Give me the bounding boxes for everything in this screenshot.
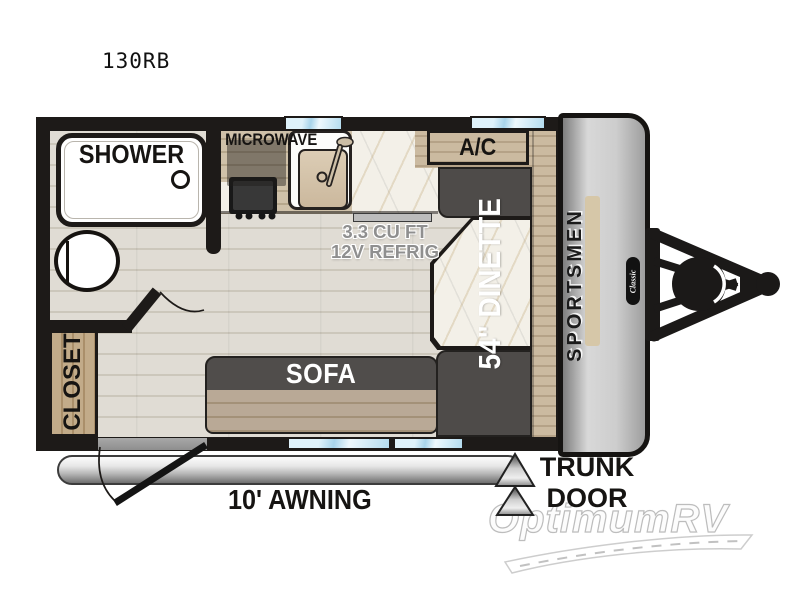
window-dinette-bottom <box>393 437 464 450</box>
toilet <box>54 230 120 292</box>
ac-label: A/C <box>459 134 496 162</box>
model-number-label: 130RB <box>102 49 170 73</box>
floorplan-canvas: 130RB A/C SOFA SHOWER CLOSET <box>0 0 800 600</box>
brand-label: SPORTSMEN <box>562 165 588 405</box>
trunk-door-label: TRUNK DOOR <box>528 452 646 514</box>
refrigerator-label: 3.3 CU FT 12V REFRIG <box>330 222 440 262</box>
trunk-door-label-line1: TRUNK <box>528 452 646 483</box>
wall-bathroom-bottom <box>36 320 132 333</box>
window-kitchen <box>284 116 343 131</box>
ac-unit: A/C <box>427 130 529 165</box>
sofa-seat <box>205 390 438 434</box>
dinette-label: 54" DINETTE <box>473 179 507 389</box>
sofa-label: SOFA <box>286 358 356 390</box>
shower-label: SHOWER <box>61 139 202 170</box>
window-sofa <box>287 437 391 450</box>
wall-left <box>36 117 50 451</box>
coupler-icon <box>756 272 780 296</box>
entry-door-opening <box>98 438 207 450</box>
awning-label: 10' AWNING <box>185 484 415 516</box>
trunk-door-label-line2: DOOR <box>528 483 646 514</box>
front-wall-ledge <box>532 127 556 437</box>
sofa: SOFA <box>205 356 438 392</box>
classic-badge: Classic <box>626 257 640 305</box>
window-dinette-top <box>470 116 546 130</box>
shower-drain-icon <box>171 170 190 189</box>
hitch-frame-icon <box>645 228 780 341</box>
propane-tank-icon <box>672 257 726 311</box>
refrigerator-label-line2: 12V REFRIG <box>330 242 440 262</box>
refrigerator-label-line1: 3.3 CU FT <box>330 222 440 242</box>
awning-bar <box>57 455 523 485</box>
microwave-label: MICROWAVE <box>213 131 329 150</box>
closet-label: CLOSET <box>59 322 87 442</box>
sink-basin <box>298 149 348 209</box>
toilet-tank-line <box>66 241 69 285</box>
